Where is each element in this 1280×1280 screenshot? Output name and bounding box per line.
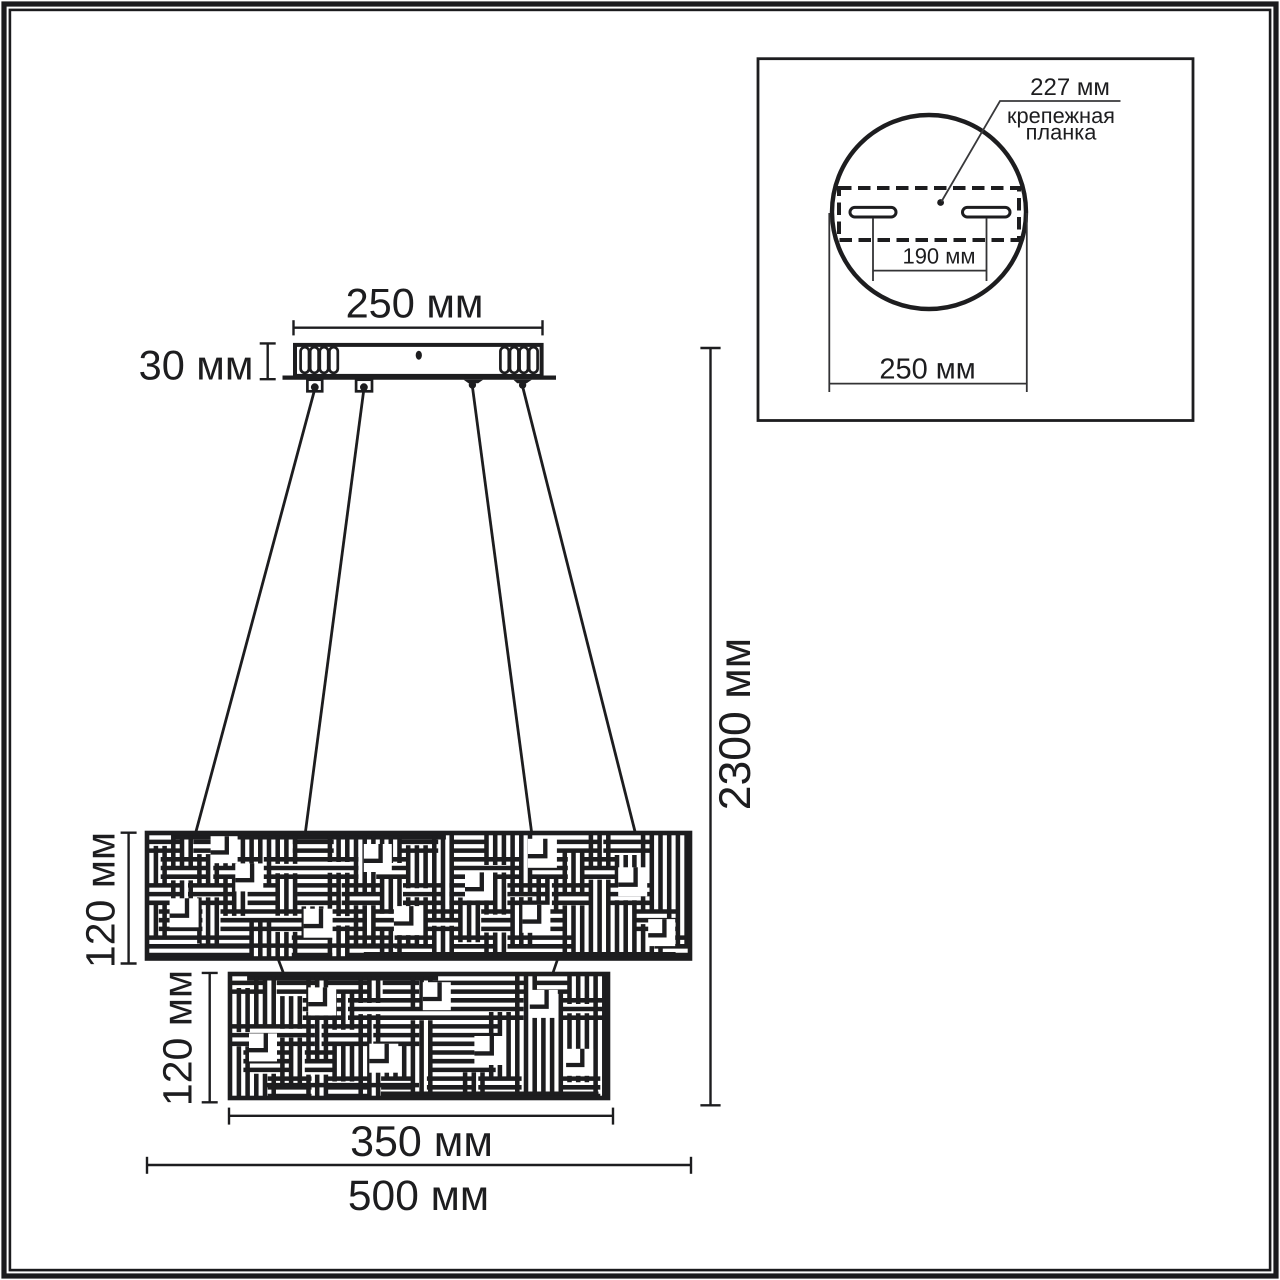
svg-text:227 мм: 227 мм — [1030, 74, 1110, 101]
svg-text:планка: планка — [1026, 120, 1098, 145]
svg-text:30 мм: 30 мм — [139, 342, 254, 389]
svg-text:190 мм: 190 мм — [902, 244, 975, 269]
svg-text:120 мм: 120 мм — [78, 832, 124, 968]
svg-text:350 мм: 350 мм — [350, 1118, 493, 1166]
svg-text:250 мм: 250 мм — [346, 280, 484, 327]
svg-text:120 мм: 120 мм — [155, 970, 201, 1106]
svg-text:2300 мм: 2300 мм — [711, 638, 760, 811]
svg-text:500 мм: 500 мм — [348, 1173, 489, 1220]
svg-text:250 мм: 250 мм — [879, 354, 975, 386]
